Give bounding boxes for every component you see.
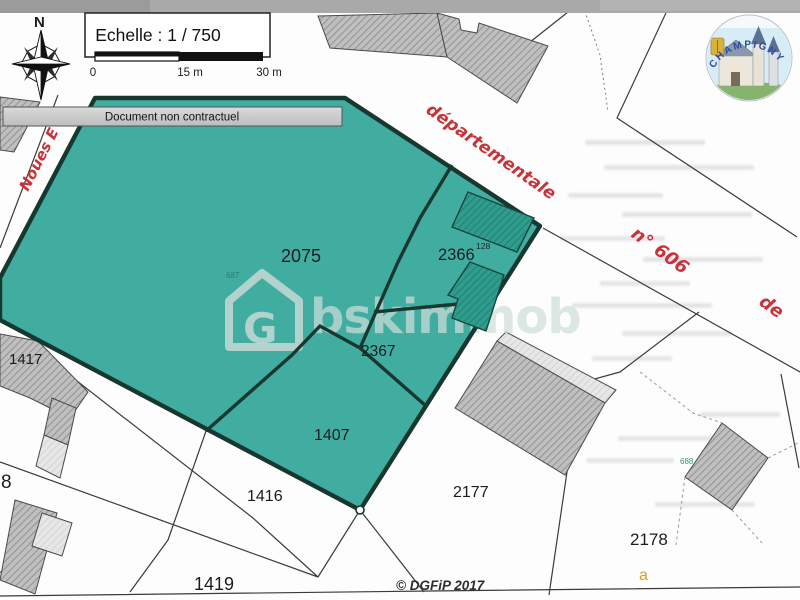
bleed-line — [604, 165, 754, 170]
bleed-line — [592, 356, 672, 361]
compass-north-label: N — [34, 14, 45, 31]
parcel-label-2367: 2367 — [361, 343, 395, 360]
bleed-line — [622, 212, 752, 217]
ref-label-688: 688 — [680, 457, 694, 466]
disclaimer-banner: Document non contractuel — [3, 107, 342, 126]
parcel-label-2075: 2075 — [281, 246, 321, 266]
parcel-label-2366: 2366 — [438, 246, 475, 264]
banner-text: Document non contractuel — [105, 112, 239, 124]
parcel-label-1407: 1407 — [314, 427, 350, 444]
bleed-line — [655, 502, 755, 507]
survey-point-marker — [356, 506, 364, 514]
cadastral-map-page: G bskimmob Noues E départementale n° 606… — [0, 0, 800, 600]
parcel-label-2178: 2178 — [630, 530, 668, 549]
parcel-label-2177: 2177 — [453, 484, 489, 501]
scale-title: Echelle : 1 / 750 — [95, 25, 221, 45]
sub-label-a: a — [639, 567, 648, 584]
parcel-label-1416: 1416 — [247, 488, 283, 505]
watermark-brand: bskimmob — [310, 289, 581, 345]
parcel-label-1417: 1417 — [9, 351, 42, 368]
bleed-line — [572, 303, 712, 308]
bleed-line — [585, 140, 705, 145]
ref-label-687: 687 — [226, 271, 240, 280]
scale-tick-15: 15 m — [177, 67, 203, 79]
bleed-line — [700, 412, 780, 417]
scale-bar-right — [179, 52, 263, 61]
cadastral-map: G bskimmob Noues E départementale n° 606… — [0, 0, 800, 600]
scan-bar-shade — [600, 0, 800, 11]
scale-bar-left-stripe — [95, 52, 179, 57]
copyright-label: © DGFiP 2017 — [396, 578, 486, 593]
ref-label-128: 128 — [476, 241, 490, 251]
bleed-line — [618, 436, 718, 441]
watermark-monogram: G — [243, 304, 277, 353]
scale-tick-0: 0 — [90, 67, 96, 79]
bleed-line — [586, 458, 674, 463]
bleed-line — [622, 331, 732, 336]
parcel-label-8: 8 — [1, 472, 12, 493]
scan-top-edge — [0, 0, 800, 13]
parcel-label-1419: 1419 — [194, 574, 234, 594]
church-door — [731, 72, 740, 86]
scan-bar-shade — [0, 0, 150, 13]
bleed-line — [568, 193, 663, 198]
scale-box: Echelle : 1 / 750 — [85, 13, 270, 57]
scale-tick-30: 30 m — [256, 67, 282, 79]
